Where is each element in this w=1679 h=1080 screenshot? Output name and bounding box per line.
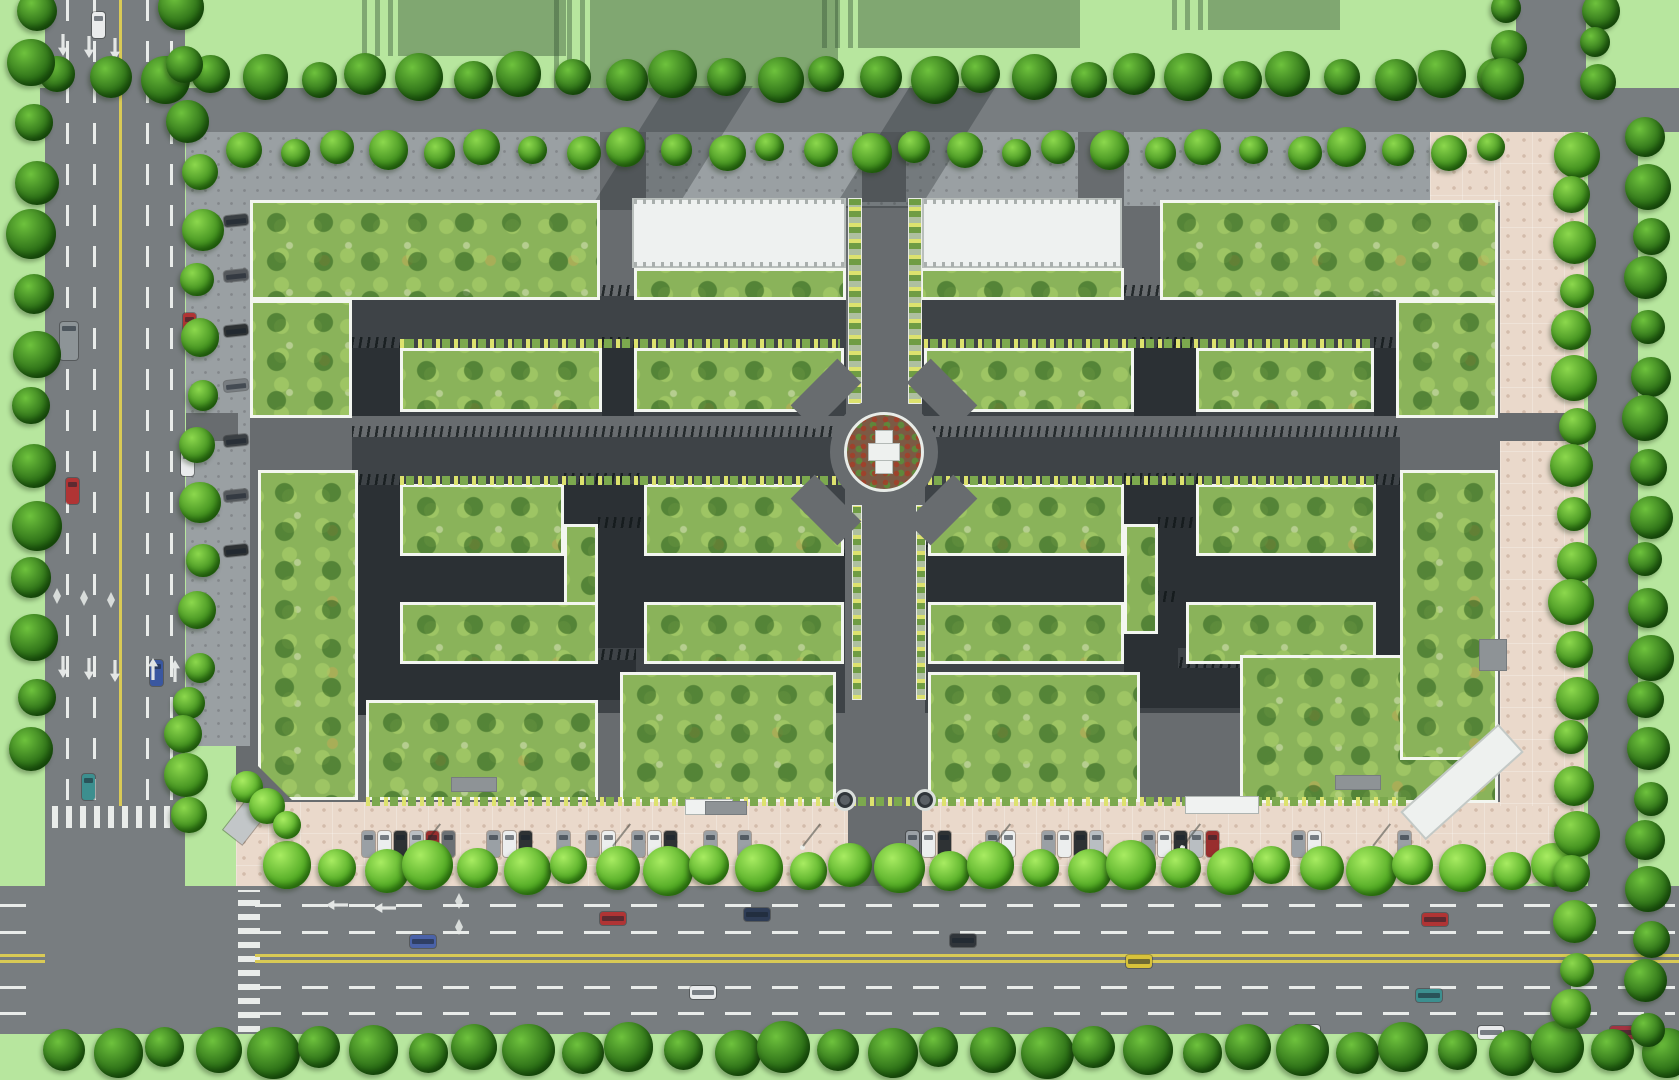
road-marking-dashH	[0, 1012, 45, 1015]
tree	[166, 46, 203, 83]
car	[600, 912, 626, 925]
tree	[1090, 130, 1129, 169]
road-marking-dashV	[146, 0, 149, 800]
tree	[1223, 61, 1262, 100]
road-marking-dashH	[0, 986, 45, 989]
car-windshield	[226, 493, 246, 500]
car	[950, 934, 976, 947]
tree	[1482, 58, 1523, 99]
tree	[1288, 136, 1322, 170]
tree	[1021, 1027, 1074, 1080]
car	[1416, 989, 1442, 1002]
tree	[661, 134, 692, 165]
tree	[1580, 64, 1616, 100]
tree	[758, 57, 803, 102]
tree	[648, 50, 696, 98]
tree	[90, 56, 132, 98]
car	[1292, 831, 1305, 857]
tree	[13, 331, 60, 378]
tree	[179, 427, 215, 463]
road-marking-solidY	[255, 960, 1679, 963]
entrance-canopy	[1480, 640, 1506, 670]
tree	[1551, 310, 1591, 350]
tree	[1559, 408, 1596, 445]
tree	[43, 1029, 86, 1072]
car	[1422, 913, 1448, 926]
tree	[166, 100, 209, 143]
courtyard-garden	[258, 470, 358, 800]
car-windshield	[1144, 835, 1153, 840]
tree	[1183, 1033, 1222, 1072]
tree	[868, 1028, 917, 1077]
car-windshield	[1076, 835, 1085, 840]
tree	[1207, 847, 1254, 894]
tree	[555, 59, 591, 95]
car-windshield	[226, 548, 246, 555]
tree	[188, 380, 219, 411]
tree	[1336, 1032, 1379, 1075]
courtyard-garden	[920, 268, 1124, 300]
tree	[145, 1027, 184, 1066]
building-roof	[602, 348, 634, 416]
tree	[715, 1030, 761, 1076]
courtyard-garden	[250, 300, 352, 418]
tree	[1625, 164, 1671, 210]
tree	[171, 797, 206, 832]
courtyard-garden	[644, 602, 844, 664]
car-windshield	[1424, 917, 1446, 922]
tree	[94, 1028, 143, 1077]
entrance-canopy	[1186, 797, 1258, 813]
tree	[828, 843, 872, 887]
building-shadow	[398, 0, 566, 56]
building-roof	[1124, 668, 1240, 708]
car-windshield	[444, 835, 453, 840]
car-windshield	[364, 835, 373, 840]
car-windshield	[1060, 835, 1069, 840]
car-windshield	[226, 438, 246, 445]
car-windshield	[746, 912, 768, 917]
tree	[395, 53, 443, 101]
tree	[1439, 844, 1486, 891]
tree	[1253, 846, 1290, 883]
tree	[302, 62, 338, 98]
central-pavilion	[869, 444, 899, 460]
tree	[967, 841, 1014, 888]
courtyard-garden	[400, 484, 564, 556]
tree	[757, 1021, 810, 1074]
courtyard-garden	[620, 672, 836, 802]
palm-planting-row	[924, 339, 1374, 348]
tree	[1624, 959, 1667, 1002]
palm-planting-row	[400, 476, 844, 485]
road	[1588, 128, 1638, 888]
tree	[1633, 921, 1670, 958]
building-roof	[400, 660, 636, 700]
building-shadow	[1208, 0, 1340, 30]
tree	[1489, 1030, 1535, 1076]
tree	[1556, 677, 1599, 720]
tree	[281, 139, 310, 168]
courtyard-garden	[634, 268, 846, 300]
tree	[1625, 117, 1665, 157]
car-windshield	[1418, 993, 1440, 998]
tree	[1634, 782, 1668, 816]
tree	[1554, 811, 1600, 857]
tree	[1072, 1026, 1115, 1069]
car-windshield	[604, 835, 613, 840]
car-windshield	[396, 835, 405, 840]
tree	[263, 841, 310, 888]
tree	[1553, 221, 1596, 264]
tree	[504, 847, 551, 894]
car-windshield	[706, 835, 715, 840]
car-windshield	[226, 273, 246, 280]
car-windshield	[412, 835, 421, 840]
car-windshield	[924, 835, 933, 840]
car-windshield	[1044, 835, 1053, 840]
car-windshield	[1160, 835, 1169, 840]
building-shadow	[858, 0, 1080, 48]
car	[60, 322, 78, 360]
tree	[1276, 1024, 1329, 1077]
tree	[11, 557, 52, 598]
tree	[1633, 218, 1670, 255]
tree	[874, 843, 925, 894]
tree	[550, 846, 587, 883]
tree	[518, 136, 547, 165]
tree	[12, 444, 56, 488]
tree	[451, 1024, 497, 1070]
tree	[402, 840, 453, 891]
car-windshield	[650, 835, 659, 840]
courtyard-garden	[1196, 484, 1376, 556]
plaza-fountain	[914, 789, 936, 811]
car	[410, 935, 436, 948]
tree	[1554, 132, 1600, 178]
tree	[817, 1029, 860, 1072]
car-windshield	[666, 835, 675, 840]
car-windshield	[1092, 835, 1101, 840]
car-windshield	[412, 939, 434, 944]
street-lamp	[800, 845, 805, 850]
white-roof-building	[922, 198, 1122, 268]
tree	[344, 53, 386, 95]
tree	[164, 753, 208, 797]
courtyard-garden	[928, 602, 1124, 664]
car-windshield	[588, 835, 597, 840]
car	[1058, 831, 1071, 857]
tree	[15, 104, 52, 141]
car-windshield	[692, 990, 714, 995]
tree	[1022, 849, 1059, 886]
car-windshield	[62, 326, 76, 331]
tree	[1382, 134, 1413, 165]
car-windshield	[602, 916, 624, 921]
entrance-canopy	[1336, 776, 1380, 789]
building-roof	[352, 485, 400, 715]
tree	[320, 130, 354, 164]
building-roof	[598, 528, 644, 648]
road-marking-dashH	[255, 904, 1675, 907]
tree	[1628, 635, 1674, 681]
road-marking-dashH	[0, 931, 45, 934]
tree	[1554, 766, 1594, 806]
tree	[606, 59, 648, 101]
car	[92, 12, 105, 38]
tree	[186, 544, 219, 577]
car	[66, 478, 79, 504]
tree	[596, 846, 640, 890]
tree	[369, 130, 408, 169]
tree	[1627, 681, 1664, 718]
tree	[970, 1027, 1016, 1073]
car-windshield	[68, 482, 77, 487]
car-windshield	[1128, 959, 1150, 964]
tree	[804, 133, 838, 167]
tree	[1327, 127, 1366, 166]
tree	[1556, 631, 1593, 668]
tree	[808, 56, 844, 92]
courtyard-garden	[1400, 470, 1498, 760]
courtyard-garden	[1196, 348, 1374, 412]
tree	[1557, 497, 1591, 531]
tree	[180, 263, 213, 296]
entrance-canopy	[706, 802, 746, 814]
tree	[1630, 496, 1673, 539]
car-windshield	[505, 835, 514, 840]
car-windshield	[1004, 835, 1013, 840]
tree	[457, 848, 498, 889]
car-windshield	[521, 835, 530, 840]
tree	[1622, 395, 1668, 441]
tree	[1346, 846, 1397, 897]
road-marking-zebV	[52, 806, 184, 828]
tree	[1582, 0, 1621, 30]
tree	[961, 55, 1000, 94]
road-marking-dashH	[0, 904, 45, 907]
tree	[1531, 1021, 1584, 1074]
road-marking-solidY	[119, 0, 122, 806]
tree	[15, 161, 59, 205]
entrance-canopy	[452, 778, 496, 791]
car-windshield	[380, 835, 389, 840]
tree	[1438, 1030, 1477, 1069]
tree	[182, 209, 223, 250]
car-windshield	[1208, 835, 1217, 840]
tree	[1627, 727, 1670, 770]
tree	[409, 1033, 448, 1072]
tree	[1553, 900, 1596, 943]
car-windshield	[94, 16, 103, 21]
tree	[1624, 256, 1667, 299]
tree	[1071, 62, 1107, 98]
plaza-fountain	[834, 789, 856, 811]
tree	[1553, 176, 1590, 213]
tree	[664, 1030, 703, 1069]
tree	[18, 679, 55, 716]
tree	[173, 687, 205, 719]
tree	[1560, 953, 1594, 987]
tree	[1591, 1029, 1634, 1072]
car	[690, 986, 716, 999]
tree	[502, 1024, 555, 1077]
tree	[318, 849, 355, 886]
white-roof-building	[632, 198, 846, 268]
tree	[181, 318, 220, 357]
road-marking-dashV	[66, 0, 69, 800]
tree	[1265, 51, 1310, 96]
courtyard-garden	[400, 348, 602, 412]
tree	[496, 51, 541, 96]
tree	[1418, 50, 1466, 98]
tree	[709, 135, 746, 172]
tree	[1378, 1022, 1427, 1071]
tree	[247, 1027, 300, 1080]
palm-walk-strip	[852, 505, 862, 700]
tree	[298, 1026, 341, 1069]
courtyard-garden	[1124, 524, 1158, 634]
tree	[1123, 1025, 1172, 1074]
tree	[1630, 449, 1667, 486]
building-roof	[1134, 348, 1196, 416]
road-marking-solidY	[255, 954, 1679, 957]
tree	[919, 1027, 958, 1066]
tree	[1184, 129, 1221, 166]
tree	[10, 614, 57, 661]
tree	[567, 136, 601, 170]
road-marking-dashH	[255, 1012, 1675, 1015]
car	[82, 774, 95, 800]
tree	[1550, 444, 1593, 487]
tree	[182, 154, 218, 190]
tree	[735, 844, 782, 891]
tree	[349, 1025, 398, 1074]
tree	[1631, 310, 1665, 344]
tree	[12, 387, 49, 424]
tree	[1324, 59, 1360, 95]
tree	[898, 131, 929, 162]
car-windshield	[1310, 835, 1319, 840]
car-windshield	[1176, 835, 1185, 840]
tree	[911, 56, 959, 104]
tree	[1631, 1013, 1665, 1047]
car-windshield	[940, 835, 949, 840]
tree	[243, 54, 288, 99]
car-windshield	[559, 835, 568, 840]
tree	[852, 133, 891, 172]
tree	[454, 61, 493, 100]
tree	[929, 851, 970, 892]
tree	[1551, 355, 1597, 401]
tree	[9, 727, 53, 771]
car-windshield	[1192, 835, 1201, 840]
tree	[1493, 852, 1530, 889]
tree	[1068, 849, 1112, 893]
courtyard-garden	[1396, 300, 1498, 418]
tree	[1628, 542, 1662, 576]
tree	[164, 715, 202, 753]
car-windshield	[226, 328, 246, 335]
tree	[1625, 820, 1665, 860]
tree	[1002, 139, 1031, 168]
car-windshield	[226, 218, 246, 225]
tree	[1548, 579, 1594, 625]
site-plan-canvas	[0, 0, 1679, 1080]
car	[922, 831, 935, 857]
tree	[860, 56, 902, 98]
road-marking-solidY	[0, 960, 45, 963]
road-marking-dashH	[255, 986, 1675, 989]
road-marking-dashV	[93, 0, 96, 800]
road-marking-solidY	[0, 954, 45, 957]
car	[586, 831, 599, 857]
tree	[606, 127, 645, 166]
courtyard-garden	[928, 672, 1140, 802]
palm-planting-row	[928, 476, 1376, 485]
car-windshield	[1400, 835, 1409, 840]
tree	[1628, 588, 1668, 628]
car	[1126, 955, 1152, 968]
tree	[1392, 845, 1433, 886]
car-windshield	[226, 383, 246, 390]
tree	[196, 1027, 242, 1073]
tree	[1145, 137, 1176, 168]
courtyard-garden	[250, 200, 600, 300]
palm-planting-row	[400, 339, 840, 348]
tree	[179, 482, 220, 523]
tree	[6, 209, 57, 260]
courtyard-garden	[400, 602, 598, 664]
tree	[1300, 846, 1344, 890]
tree	[1580, 27, 1611, 58]
car-windshield	[634, 835, 643, 840]
car-windshield	[952, 938, 974, 943]
car-windshield	[908, 835, 917, 840]
car-windshield	[489, 835, 498, 840]
car-windshield	[84, 778, 93, 783]
car-windshield	[740, 835, 749, 840]
car-windshield	[1294, 835, 1303, 840]
tree	[1012, 54, 1057, 99]
tree	[1551, 989, 1591, 1029]
tree	[463, 129, 500, 166]
building-roof	[352, 348, 400, 416]
tree	[790, 852, 827, 889]
tree	[1113, 53, 1155, 95]
tree	[1631, 357, 1671, 397]
tree	[1553, 855, 1590, 892]
tree	[604, 1022, 653, 1071]
tree	[1225, 1024, 1271, 1070]
car	[744, 908, 770, 921]
tree	[424, 137, 455, 168]
tree	[1560, 274, 1594, 308]
courtyard-garden	[1160, 200, 1498, 300]
tree	[7, 39, 54, 86]
tree	[562, 1032, 605, 1075]
